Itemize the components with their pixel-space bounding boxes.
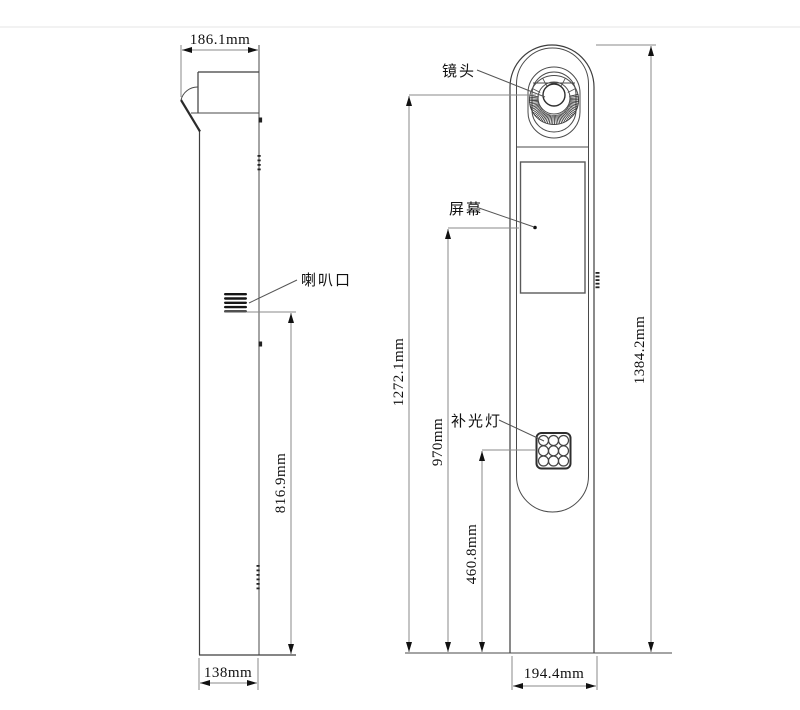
dim-front-lens-height-text: 1272.1mm — [391, 338, 407, 407]
fill-light-callout: 补光灯 — [451, 413, 544, 441]
front-view: 镜头 屏幕 补光灯 1272.1mm 970mm 460.8mm — [391, 45, 672, 690]
dim-front-base-width: 194.4mm — [512, 656, 597, 690]
dim-side-base-depth: 138mm — [199, 658, 258, 690]
technical-drawing-page: 喇叭口 186.1mm 816.9mm 138mm — [0, 0, 800, 710]
screen-leader-dot — [533, 226, 537, 230]
fill-light — [537, 433, 571, 469]
camera-housing-arc — [181, 87, 198, 100]
speaker-grille — [224, 293, 247, 313]
dim-front-screen-height: 970mm — [430, 228, 519, 652]
lens-label: 镜头 — [442, 62, 476, 80]
speaker-callout: 喇叭口 — [249, 272, 352, 303]
dim-side-base-depth-text: 138mm — [204, 665, 252, 681]
side-view: 喇叭口 186.1mm 816.9mm 138mm — [181, 32, 352, 690]
camera-housing-front — [181, 100, 200, 132]
dim-side-speaker-height-text: 816.9mm — [273, 453, 289, 514]
dim-front-light-height: 460.8mm — [464, 450, 536, 652]
camera-module — [528, 67, 580, 138]
front-view-outline — [510, 45, 594, 653]
fill-light-outline — [537, 433, 571, 469]
screen-label: 屏幕 — [449, 201, 483, 218]
front-edge-details — [596, 272, 600, 288]
dimension-drawing: 喇叭口 186.1mm 816.9mm 138mm — [0, 0, 800, 710]
dim-front-total-height: 1384.2mm — [596, 45, 656, 652]
dim-front-base-width-text: 194.4mm — [524, 666, 585, 682]
fill-light-label: 补光灯 — [451, 413, 502, 430]
screen-outline — [521, 162, 586, 293]
dim-side-top-width-text: 186.1mm — [190, 32, 251, 48]
speaker-label: 喇叭口 — [301, 272, 352, 289]
lens-icon — [543, 84, 565, 106]
lens-callout: 镜头 — [442, 62, 545, 97]
dim-front-light-height-text: 460.8mm — [464, 524, 480, 585]
side-view-outline — [181, 45, 296, 655]
screen — [521, 162, 586, 293]
dim-side-speaker-height: 816.9mm — [224, 312, 296, 654]
screen-callout: 屏幕 — [449, 201, 534, 227]
dim-front-total-height-text: 1384.2mm — [632, 316, 648, 385]
dim-front-screen-height-text: 970mm — [430, 418, 446, 466]
